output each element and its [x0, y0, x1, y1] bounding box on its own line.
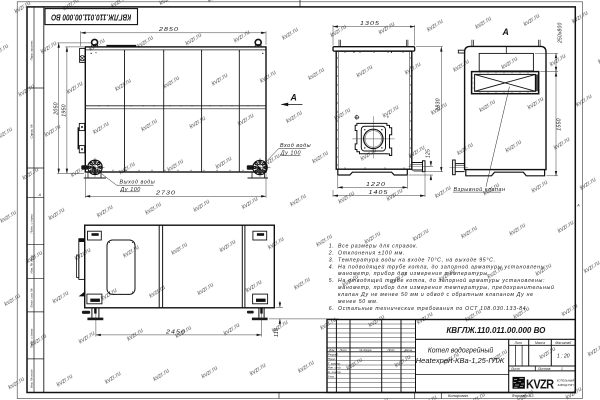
svg-text:Отклонения ±100 мм.: Отклонения ±100 мм.: [338, 251, 405, 257]
svg-text:Лит.: Лит.: [514, 341, 523, 345]
svg-text:4.: 4.: [329, 264, 335, 270]
svg-text:1: 1: [561, 367, 563, 371]
svg-text:Масса: Масса: [535, 341, 545, 345]
svg-text:Листов: Листов: [537, 367, 551, 371]
svg-text:115: 115: [274, 328, 280, 337]
svg-text:Масштаб: Масштаб: [555, 341, 571, 345]
svg-text:Взам. инв. №: Взам. инв. №: [29, 288, 33, 308]
svg-text:250х800: 250х800: [558, 23, 564, 44]
svg-text:Взрывной клапан: Взрывной клапан: [454, 186, 506, 193]
svg-text:КВГЛЖ.110.011.00.000 ВО: КВГЛЖ.110.011.00.000 ВО: [51, 13, 131, 22]
svg-text:Лист: Лист: [510, 367, 520, 371]
svg-text:Подп. и дата: Подп. и дата: [29, 214, 33, 234]
svg-text:1 : 20: 1 : 20: [557, 354, 570, 360]
svg-text:Изм: Изм: [329, 348, 334, 352]
svg-text:5.: 5.: [329, 278, 335, 284]
svg-text:Н. контр.: Н. контр.: [328, 370, 342, 374]
svg-text:А: А: [38, 193, 42, 197]
svg-text:А: А: [290, 92, 297, 102]
svg-text:6.: 6.: [329, 306, 335, 312]
svg-text:Нач. отд.: Нач. отд.: [328, 366, 342, 370]
svg-text:Остальные технические требован: Остальные технические требования по ОСТ …: [338, 306, 528, 312]
svg-text:1305: 1305: [360, 21, 380, 27]
svg-text:2050: 2050: [53, 102, 59, 116]
svg-text:Температура воды на входе 70°С: Температура воды на входе 70°С, на выход…: [338, 257, 496, 263]
svg-text:КВГЛЖ.110.011.00.000 ВО: КВГЛЖ.110.011.00.000 ВО: [446, 325, 545, 335]
svg-text:Разраб.: Разраб.: [328, 353, 339, 357]
svg-text:Heatexpert-КВа-1,25-ГЛЖ: Heatexpert-КВа-1,25-ГЛЖ: [416, 358, 505, 365]
svg-text:2450: 2450: [165, 329, 186, 335]
svg-text:1550: 1550: [557, 118, 563, 131]
svg-text:Инв. № подл.: Инв. № подл.: [29, 369, 33, 388]
svg-text:Подп. и дата: Подп. и дата: [29, 328, 33, 348]
svg-text:А: А: [502, 27, 509, 37]
svg-text:1.: 1.: [329, 244, 335, 250]
svg-text:2730: 2730: [155, 191, 176, 197]
svg-text:KVZR: KVZR: [526, 378, 554, 392]
svg-text:2.: 2.: [328, 251, 335, 257]
svg-text:Выход воды: Выход воды: [120, 180, 156, 186]
svg-text:Справ. №: Справ. №: [29, 124, 33, 139]
svg-text:менее 50 мм.: менее 50 мм.: [338, 299, 379, 305]
svg-text:КОТЕЛЬНЫЙ: КОТЕЛЬНЫЙ: [557, 379, 575, 383]
svg-text:Инв. № дубл.: Инв. № дубл.: [29, 254, 33, 273]
svg-text:1830: 1830: [436, 98, 442, 111]
svg-text:Лист: Лист: [338, 348, 347, 352]
svg-text:Перв. примен.: Перв. примен.: [29, 40, 33, 61]
svg-text:1405: 1405: [369, 190, 389, 196]
svg-text:На подводящей трубе котла, до: На подводящей трубе котла, до запорной а…: [338, 263, 547, 270]
svg-text:Котел водогрейный: Котел водогрейный: [428, 346, 494, 354]
svg-text:Пров.: Пров.: [328, 357, 336, 361]
svg-text:2850: 2850: [158, 27, 179, 33]
svg-text:Формат А3: Формат А3: [512, 393, 535, 398]
svg-text:1950: 1950: [62, 104, 68, 117]
svg-text:манометр, прибор для измерения: манометр, прибор для измерения температу…: [338, 271, 490, 277]
svg-text:Утв.: Утв.: [328, 375, 335, 379]
svg-text:А: А: [576, 203, 580, 207]
svg-text:Подп.: Подп.: [387, 348, 395, 352]
svg-text:Вход воды: Вход воды: [280, 143, 311, 149]
svg-text:3.: 3.: [329, 257, 335, 263]
svg-text:125: 125: [425, 149, 431, 158]
svg-text:Копировал: Копировал: [448, 393, 469, 398]
svg-text:Т. контр.: Т. контр.: [328, 361, 341, 365]
svg-text:№ докум.: № докум.: [359, 348, 372, 352]
svg-text:ЗАВОД РЭП: ЗАВОД РЭП: [558, 383, 574, 387]
svg-text:Дата: Дата: [403, 348, 412, 352]
svg-text:клапан Ду не менее 50 мм и обв: клапан Ду не менее 50 мм и обвод с обрат…: [338, 292, 534, 298]
svg-text:манометр, прибор для измерения: манометр, прибор для измерения температу…: [338, 284, 555, 291]
svg-text:1220: 1220: [366, 182, 386, 188]
svg-text:На отводящей трубе котла, до з: На отводящей трубе котла, до запорной ар…: [338, 277, 545, 284]
svg-text:Все размеры для справок.: Все размеры для справок.: [338, 244, 418, 250]
